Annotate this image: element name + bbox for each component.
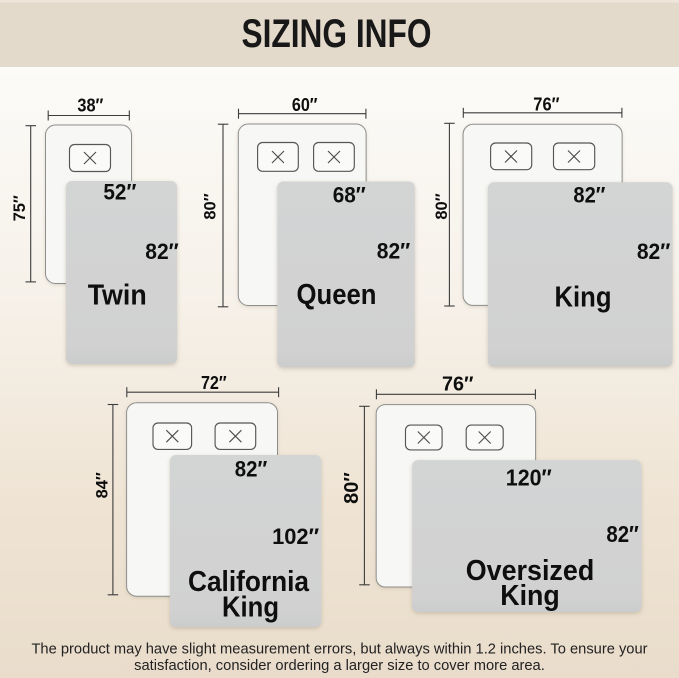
svg-text:King: King [500, 580, 560, 612]
svg-text:120″: 120″ [506, 464, 552, 490]
svg-text:38″: 38″ [77, 96, 103, 116]
svg-text:King: King [555, 281, 612, 313]
svg-text:75″: 75″ [11, 195, 29, 221]
svg-text:King: King [222, 592, 279, 624]
svg-text:82″: 82″ [235, 457, 268, 482]
svg-text:80″: 80″ [340, 472, 363, 504]
svg-text:52″: 52″ [103, 179, 136, 204]
svg-text:The product may have slight me: The product may have slight measurement … [31, 642, 647, 658]
svg-text:76″: 76″ [533, 95, 560, 115]
svg-text:72″: 72″ [201, 373, 227, 393]
svg-text:84″: 84″ [93, 472, 111, 498]
svg-text:68″: 68″ [333, 183, 366, 208]
svg-text:satisfaction, consider orderin: satisfaction, consider ordering a larger… [134, 658, 545, 674]
svg-text:76″: 76″ [442, 372, 474, 395]
svg-text:SIZING INFO: SIZING INFO [242, 12, 432, 56]
svg-text:82″: 82″ [573, 183, 605, 208]
svg-text:102″: 102″ [272, 524, 319, 549]
svg-text:82″: 82″ [606, 521, 639, 547]
svg-text:Twin: Twin [88, 280, 147, 312]
svg-text:80″: 80″ [433, 193, 451, 219]
svg-text:80″: 80″ [201, 193, 219, 219]
svg-text:60″: 60″ [292, 95, 318, 115]
svg-text:82″: 82″ [377, 239, 411, 264]
svg-text:Queen: Queen [297, 279, 377, 311]
svg-text:82″: 82″ [637, 239, 671, 264]
svg-text:82″: 82″ [145, 239, 179, 264]
